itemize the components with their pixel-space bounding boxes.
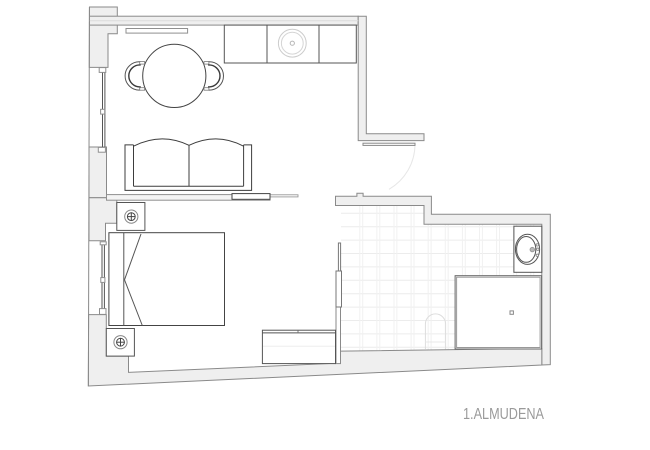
- svg-text:1.ALMUDENA: 1.ALMUDENA: [463, 406, 544, 423]
